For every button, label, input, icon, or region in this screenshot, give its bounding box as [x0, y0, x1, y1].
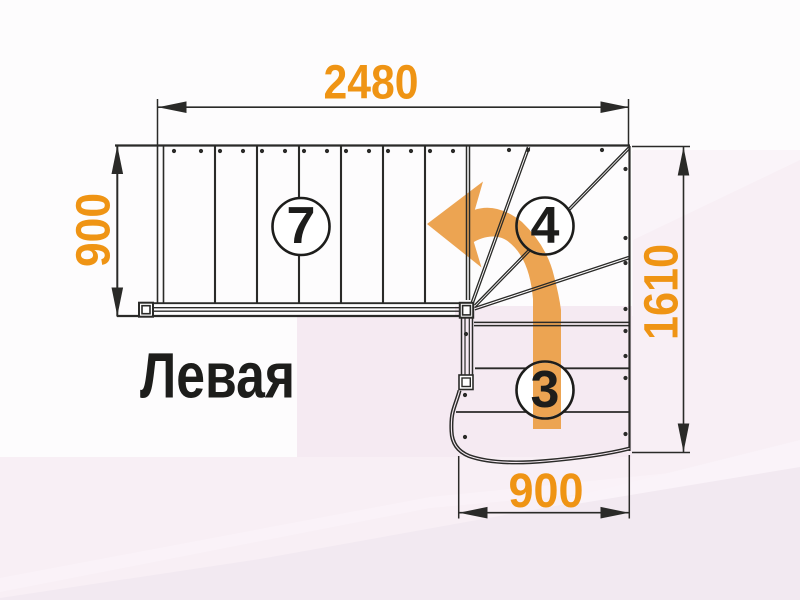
- svg-text:900: 900: [68, 193, 121, 267]
- svg-text:2480: 2480: [324, 57, 419, 110]
- svg-text:Левая: Левая: [140, 340, 295, 412]
- svg-text:7: 7: [287, 197, 316, 255]
- svg-text:900: 900: [509, 465, 584, 518]
- svg-text:1610: 1610: [636, 244, 689, 340]
- svg-text:3: 3: [531, 361, 560, 419]
- svg-text:4: 4: [531, 197, 560, 255]
